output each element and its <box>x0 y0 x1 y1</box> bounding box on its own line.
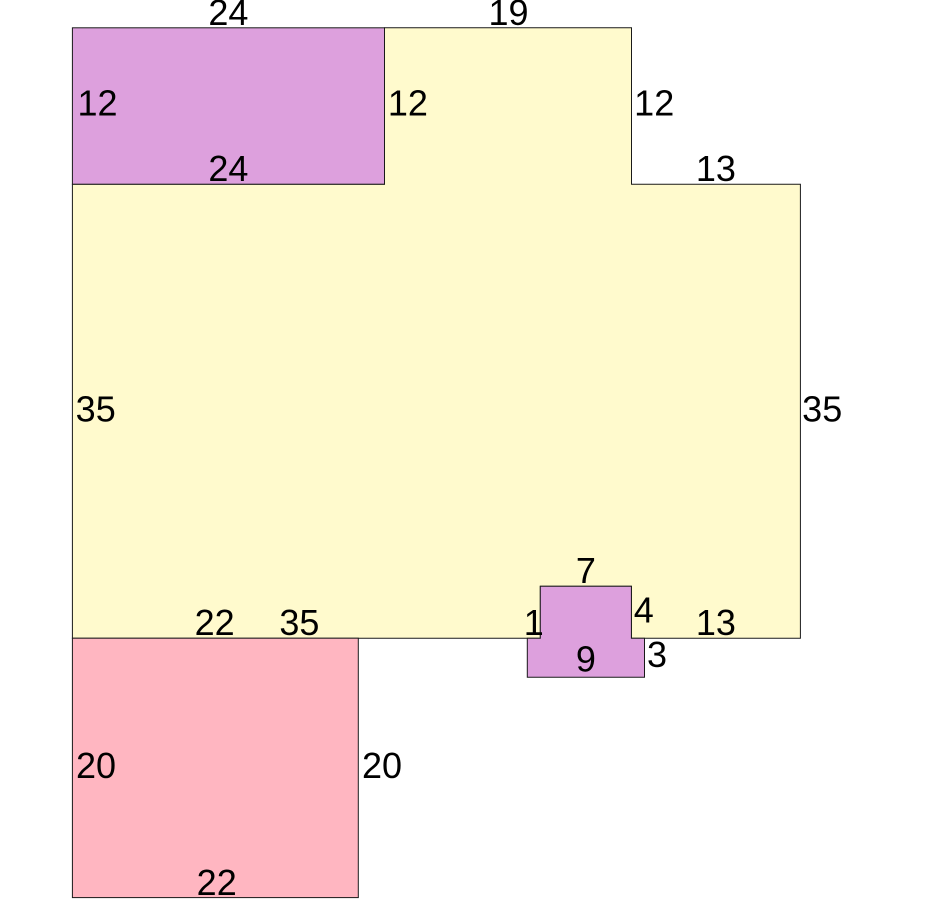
svg-text:20: 20 <box>76 745 116 786</box>
svg-text:3: 3 <box>647 634 667 675</box>
svg-text:12: 12 <box>388 82 428 123</box>
svg-text:12: 12 <box>77 82 117 123</box>
svg-text:13: 13 <box>696 602 736 643</box>
svg-text:24: 24 <box>208 148 248 189</box>
svg-text:7: 7 <box>576 550 596 591</box>
svg-text:22: 22 <box>197 862 237 903</box>
svg-text:12: 12 <box>634 82 674 123</box>
svg-text:9: 9 <box>576 639 596 680</box>
svg-text:22: 22 <box>195 602 235 643</box>
svg-text:1: 1 <box>524 602 544 643</box>
svg-text:35: 35 <box>802 389 842 430</box>
svg-text:13: 13 <box>696 148 736 189</box>
svg-text:35: 35 <box>279 602 319 643</box>
svg-text:20: 20 <box>362 745 402 786</box>
svg-text:4: 4 <box>634 589 654 630</box>
svg-text:35: 35 <box>76 389 116 430</box>
svg-text:19: 19 <box>488 0 528 33</box>
svg-text:24: 24 <box>208 0 248 33</box>
